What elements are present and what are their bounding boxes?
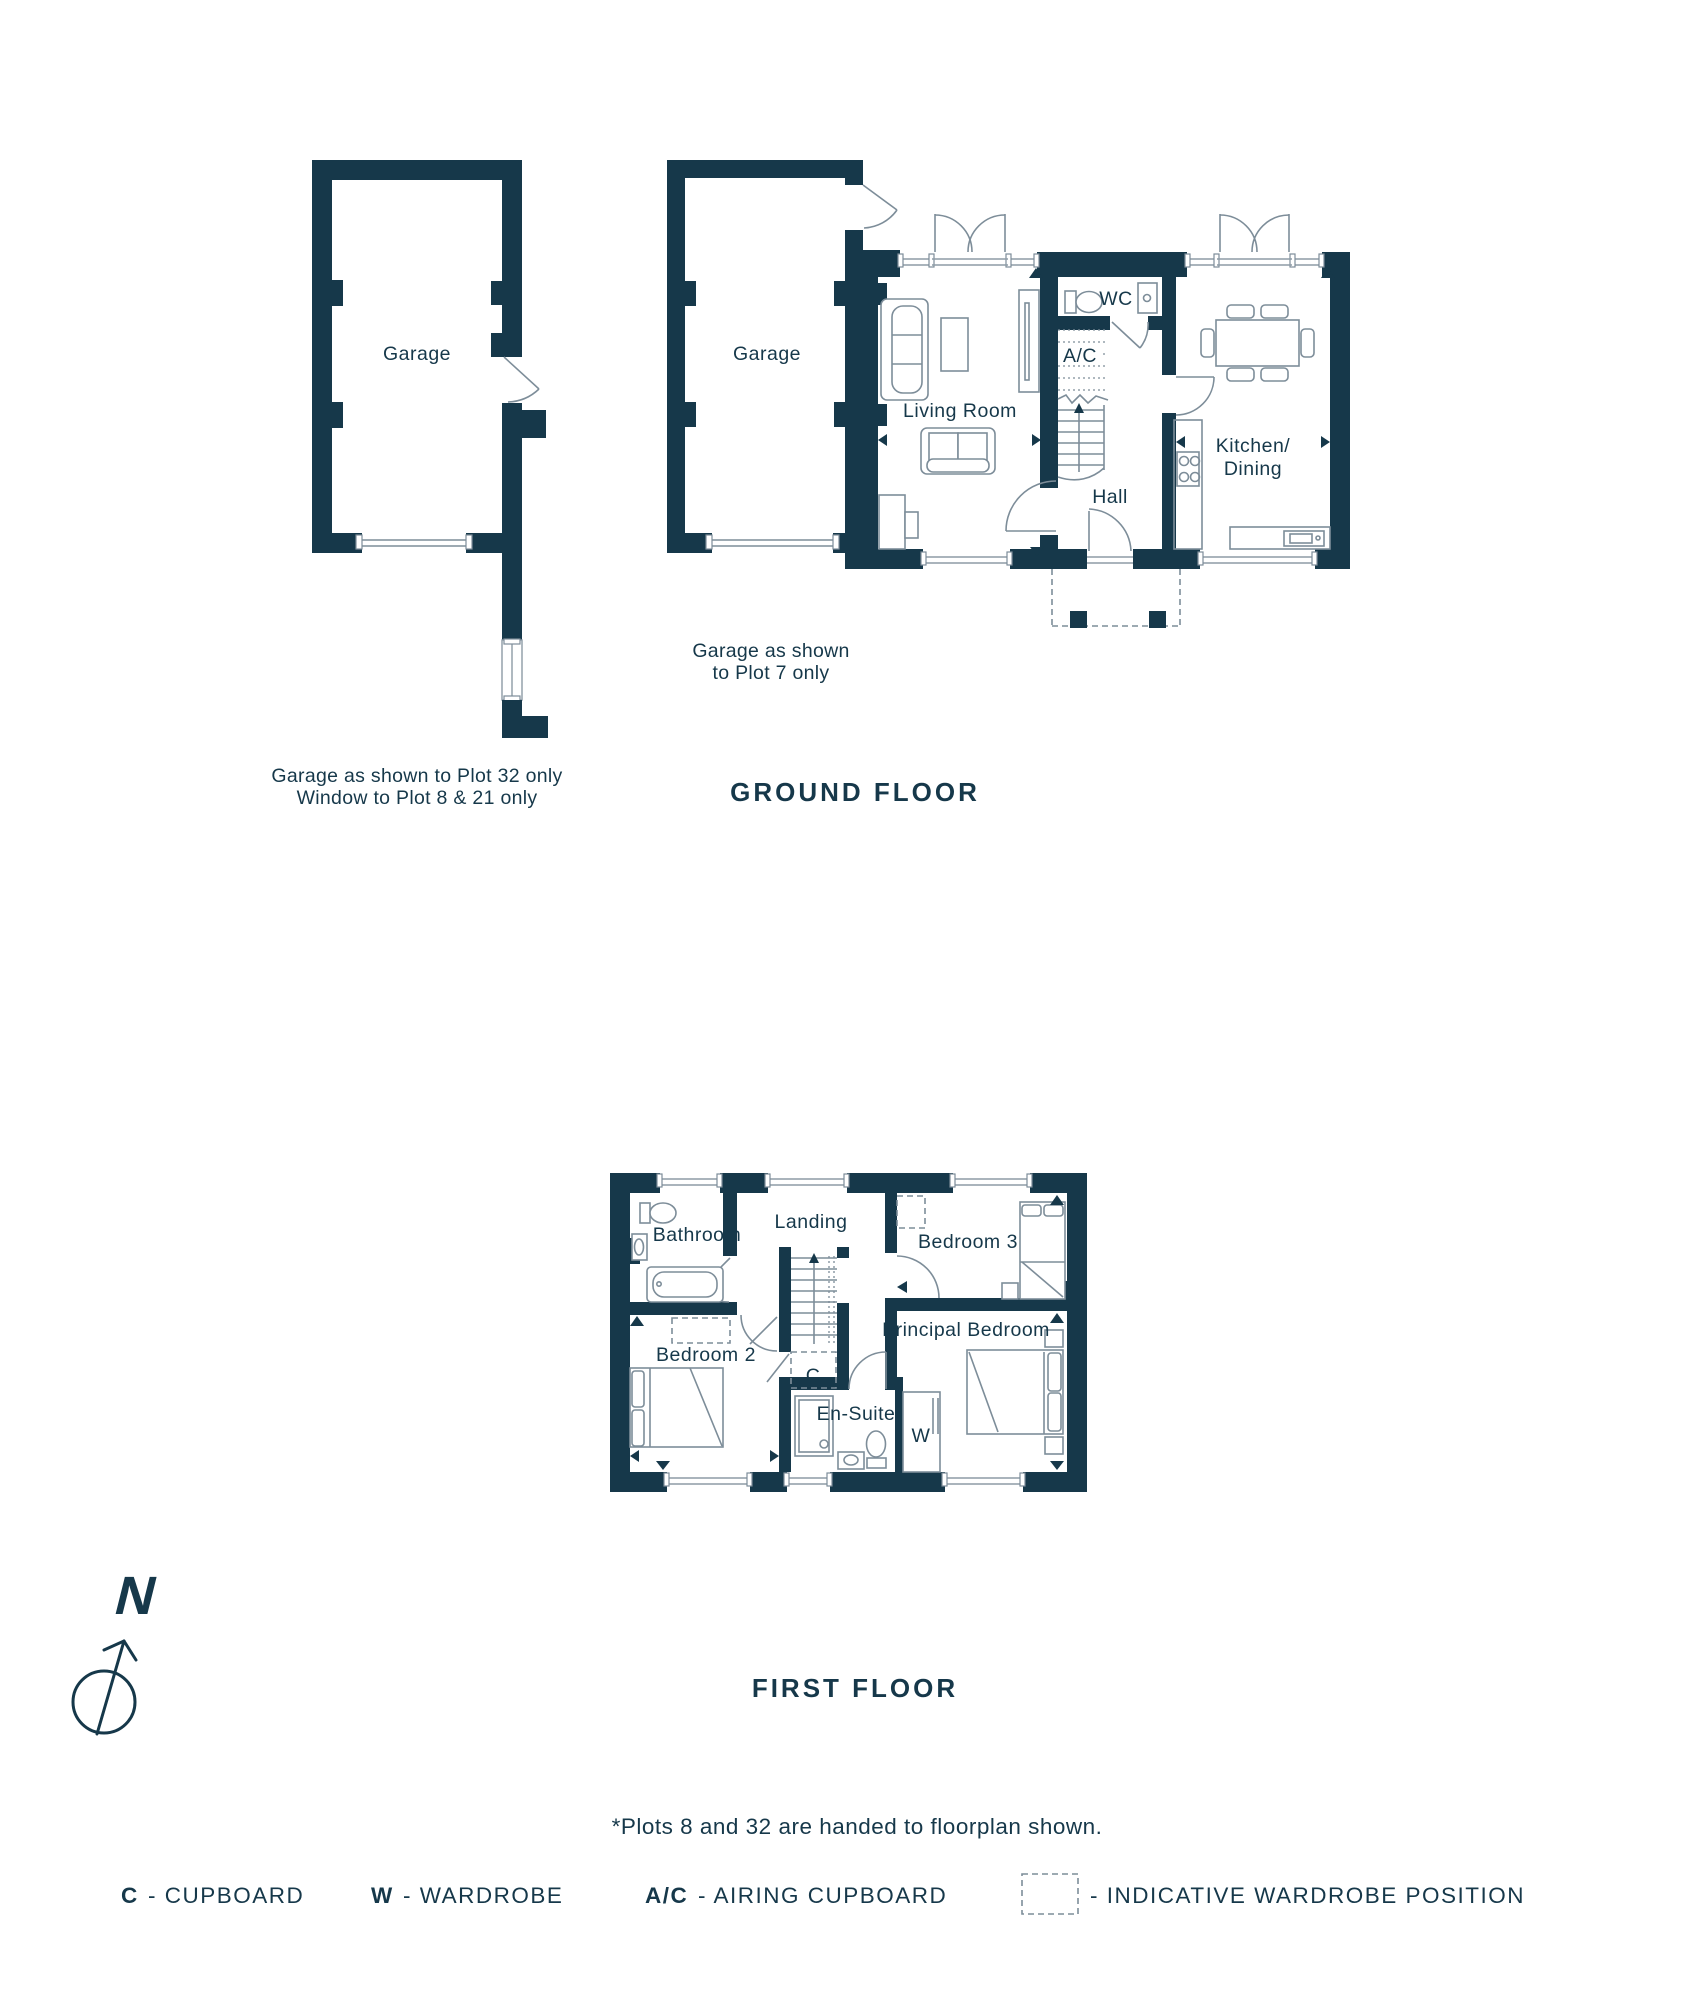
legend-airing-key: A/C — [645, 1883, 688, 1908]
bath-icon — [647, 1267, 723, 1302]
french-doors — [1217, 214, 1292, 265]
basin-icon — [632, 1234, 647, 1260]
legend-wardrobe-key: W — [371, 1883, 394, 1908]
house-ground-floor: WC A/C — [845, 214, 1350, 628]
legend-indicative-label: - INDICATIVE WARDROBE POSITION — [1090, 1883, 1525, 1908]
kitchen-dining-label-line2: Dining — [1224, 458, 1282, 480]
cupboard-label: C — [806, 1365, 821, 1387]
detached-garage-note-line1: Garage as shown to Plot 32 only — [271, 765, 562, 787]
floorplan-page: Garage Garage — [0, 0, 1705, 2000]
toilet-icon — [640, 1203, 676, 1223]
cabinet-icon — [879, 495, 918, 549]
toilet-icon — [1065, 291, 1102, 313]
garage-door — [356, 535, 472, 549]
living-room-label: Living Room — [903, 400, 1017, 422]
attached-garage-note-line1: Garage as shown — [692, 640, 849, 662]
en-suite-label: En-Suite — [817, 1403, 896, 1425]
loveseat-icon — [921, 428, 995, 474]
first-floor-heading: FIRST FLOOR — [752, 1673, 958, 1703]
hall-label: Hall — [1092, 486, 1128, 508]
sofa-icon — [881, 299, 928, 400]
bed-icon — [1020, 1202, 1065, 1299]
tv-unit-icon — [1019, 290, 1039, 392]
principal-bedroom-label: Principal Bedroom — [882, 1319, 1050, 1341]
hall-kitchen-wall — [1162, 255, 1214, 549]
bed-icon — [630, 1368, 723, 1447]
side-door — [504, 357, 539, 402]
detached-garage-note-line2: Window to Plot 8 & 21 only — [297, 787, 538, 809]
stairs-first — [791, 1253, 837, 1344]
garage-door — [706, 535, 839, 549]
basin-icon — [838, 1452, 864, 1469]
toilet-icon — [867, 1431, 887, 1468]
bed-icon — [967, 1350, 1063, 1434]
ground-floor-heading: GROUND FLOOR — [730, 777, 980, 807]
principal-bedroom-door — [849, 1352, 886, 1389]
legend-wardrobe-label: - WARDROBE — [403, 1883, 563, 1908]
attached-garage-note-line2: to Plot 7 only — [713, 662, 830, 684]
kitchen-dining-label-line1: Kitchen/ — [1216, 435, 1291, 457]
legend-cupboard-key: C — [121, 1883, 139, 1908]
airing-cupboard-label: A/C — [1063, 345, 1097, 367]
north-arrow: N — [73, 1565, 163, 1734]
attached-garage-plan: Garage — [667, 160, 897, 553]
french-doors — [932, 214, 1008, 265]
coffee-table-icon — [941, 318, 968, 371]
stairs-ground — [1058, 403, 1104, 480]
wc-room: WC — [1058, 283, 1162, 348]
legend-airing-label: - AIRING CUPBOARD — [698, 1883, 947, 1908]
north-label: N — [109, 1565, 163, 1626]
porch-canopy — [1052, 569, 1180, 628]
legend-dashed-box-icon — [1022, 1874, 1078, 1914]
attached-garage-label: Garage — [733, 343, 801, 365]
house-first-floor: C — [610, 1173, 1087, 1492]
bedroom2-label: Bedroom 2 — [656, 1344, 756, 1366]
detached-garage-plan: Garage — [312, 160, 548, 738]
indicative-wardrobe-bedroom3 — [897, 1196, 925, 1228]
bedroom3-label: Bedroom 3 — [918, 1231, 1018, 1253]
legend-cupboard-label: - CUPBOARD — [148, 1883, 304, 1908]
bathroom-label: Bathroom — [653, 1224, 742, 1246]
wardrobe-label: W — [912, 1425, 931, 1447]
basin-icon — [1138, 283, 1157, 313]
bedroom3-door — [897, 1256, 939, 1298]
landing-label: Landing — [775, 1211, 848, 1233]
legend: C - CUPBOARD W - WARDROBE A/C - AIRING C… — [121, 1874, 1525, 1914]
indicative-wardrobe-bedroom2 — [672, 1318, 730, 1343]
footnote: *Plots 8 and 32 are handed to floorplan … — [612, 1814, 1103, 1839]
detached-garage-label: Garage — [383, 343, 451, 365]
floorplan-canvas: Garage Garage — [0, 0, 1705, 2000]
wc-label: WC — [1099, 288, 1133, 310]
front-door — [1087, 509, 1133, 563]
side-door — [863, 185, 897, 228]
dining-table-icon — [1201, 305, 1314, 381]
bedside-table-icon — [1002, 1283, 1018, 1299]
bedside-table-icon — [1045, 1437, 1063, 1454]
airing-cupboard: A/C — [1058, 330, 1108, 403]
